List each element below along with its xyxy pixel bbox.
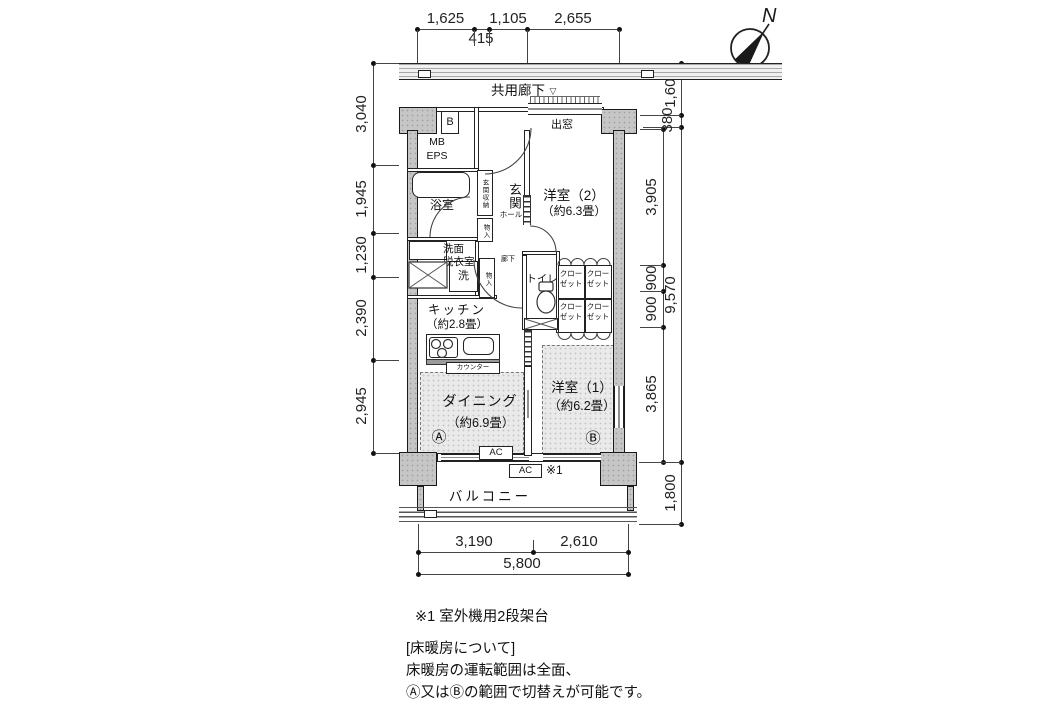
counter-label-box: カウンター xyxy=(446,362,500,374)
dim-label: 415 xyxy=(459,31,503,47)
closet-label: クロー ゼット xyxy=(559,269,583,289)
dim-label: 3,040 xyxy=(354,84,370,144)
dim-tick xyxy=(375,165,399,166)
eps-label: EPS xyxy=(413,150,461,164)
hall-label: ホール xyxy=(494,209,528,220)
wall-toilet-top xyxy=(522,251,560,255)
dim-ext xyxy=(489,30,490,46)
dim-dot xyxy=(416,572,421,577)
balcony-label: バルコニー xyxy=(443,485,537,505)
balcony-drain xyxy=(424,510,437,518)
dim-tick xyxy=(375,63,399,64)
closet-label-line: クロー xyxy=(559,302,583,312)
dim-label: 2,945 xyxy=(354,376,370,436)
dim-tick xyxy=(639,524,681,525)
floor-plan-page: N 1,625 1,105 2,655 415 3,040 1,945 1,23… xyxy=(0,0,1056,706)
western1-name: 洋室（1） xyxy=(545,376,619,396)
entry-marker-icon: ▽ xyxy=(546,86,560,97)
dim-ext xyxy=(619,30,620,63)
closet-label-line: ゼット xyxy=(586,279,610,289)
zone-b-marker: Ⓑ xyxy=(583,427,603,448)
stove xyxy=(429,337,458,358)
zone-a-marker: Ⓐ xyxy=(429,426,449,447)
closet-label-line: クロー xyxy=(586,302,610,312)
dim-tick xyxy=(375,360,399,361)
closet-label: クロー ゼット xyxy=(586,302,610,322)
dim-tick xyxy=(375,277,399,278)
note-floorheating-heading: [床暖房について] xyxy=(406,637,515,658)
entrance-storage-label: 玄関収納 xyxy=(479,173,489,215)
dim-label: 1,105 xyxy=(489,11,527,27)
dim-label: 9,570 xyxy=(663,265,679,325)
bay-window xyxy=(528,103,602,115)
corridor-drain-mark xyxy=(418,70,431,78)
meter-box: B xyxy=(441,111,459,134)
closet-label-line: ゼット xyxy=(559,312,583,322)
dim-label: 1,230 xyxy=(354,225,370,285)
dim-ext xyxy=(628,524,629,574)
dim-label: 3,865 xyxy=(644,364,660,424)
western1-size: （約6.2畳） xyxy=(545,395,619,414)
washroom-label-line: 洗面 xyxy=(443,243,493,256)
pillar-top-left xyxy=(399,107,437,134)
corridor-drain-mark xyxy=(641,70,654,78)
closet-label-line: ゼット xyxy=(586,312,610,322)
closet-bifold-arcs-bottom xyxy=(558,333,610,340)
dim-label: 2,655 xyxy=(527,11,619,27)
dim-dot xyxy=(626,572,631,577)
dim-label: 3,190 xyxy=(434,534,514,550)
dim-label: 2,390 xyxy=(354,288,370,348)
common-corridor-band xyxy=(399,63,782,80)
closet-divider xyxy=(558,298,612,300)
dim-ext xyxy=(417,30,418,63)
closet-label: クロー ゼット xyxy=(559,302,583,322)
wall-mb-right xyxy=(474,107,479,170)
hallway-label: 廊下 xyxy=(496,254,520,264)
toilet-label: トイレ xyxy=(525,271,559,286)
compass-needle-icon xyxy=(735,33,763,66)
ac-box-balcony: AC xyxy=(509,464,542,478)
dim-label: 380 xyxy=(660,100,676,140)
note-floorheating-line1: 床暖房の運転範囲は全面、 xyxy=(406,659,580,680)
kitchen-size: （約2.8畳） xyxy=(422,316,492,332)
dim-label: 2,610 xyxy=(539,534,619,550)
western2-door-gap xyxy=(524,224,530,252)
dining-name: ダイニング xyxy=(437,391,523,411)
dim-label: 1,625 xyxy=(417,11,474,27)
dim-label: 1,800 xyxy=(663,463,679,523)
washroom-label: 洗面 脱衣室 xyxy=(443,243,493,269)
dim-line xyxy=(373,63,374,453)
dim-dot xyxy=(416,550,421,555)
western2-size: （約6.3畳） xyxy=(531,202,617,219)
bath-label: 浴室 xyxy=(420,196,464,213)
western2-name: 洋室（2） xyxy=(531,184,617,204)
pillar-bottom-right xyxy=(600,452,637,486)
vent-box xyxy=(524,318,558,330)
dining-western1-opening xyxy=(524,390,532,418)
dim-ext xyxy=(527,30,528,63)
compass-north-label: N xyxy=(762,5,777,27)
dim-label: 5,800 xyxy=(482,556,562,572)
dim-line xyxy=(418,574,628,575)
bay-window-hatch xyxy=(530,96,600,103)
dim-line xyxy=(418,552,628,553)
mb-eps-label: MB EPS xyxy=(413,136,461,163)
washroom-label-line: 脱衣室 xyxy=(443,256,493,269)
dim-ext xyxy=(474,30,475,46)
ac-box-indoor: AC xyxy=(479,446,513,460)
dim-tick xyxy=(375,233,399,234)
wall-hatch xyxy=(524,330,532,366)
sink xyxy=(463,337,494,355)
balcony-sliding-window xyxy=(543,454,601,461)
storage-label: 物入 xyxy=(480,220,490,242)
closet-label-line: クロー xyxy=(559,269,583,279)
dim-line xyxy=(681,63,682,524)
closet-label-line: ゼット xyxy=(559,279,583,289)
dim-label: 1,945 xyxy=(354,169,370,229)
dim-label: 3,905 xyxy=(644,167,660,227)
note-floorheating-line2: Ⓐ又はⒷの範囲で切替えが可能です。 xyxy=(406,681,651,702)
bay-window-label: 出窓 xyxy=(538,116,586,132)
ac-note-ref: ※1 xyxy=(546,463,572,477)
washroom-cabinet xyxy=(409,241,447,260)
dim-line xyxy=(417,29,619,30)
western2-door-arc xyxy=(530,226,556,252)
dim-dot xyxy=(626,550,631,555)
bathtub xyxy=(412,172,470,198)
dim-label: 900 xyxy=(644,289,660,329)
toilet-bowl-icon xyxy=(537,291,555,313)
closet-label: クロー ゼット xyxy=(586,269,610,289)
note-ac-stand: ※1 室外機用2段架台 xyxy=(415,605,549,626)
closet-label-line: クロー xyxy=(586,269,610,279)
dim-ext xyxy=(418,524,419,574)
dim-tick xyxy=(375,453,399,454)
dining-size: （約6.9畳） xyxy=(447,412,513,431)
mb-label: MB xyxy=(413,136,461,150)
pillar-bottom-left xyxy=(399,452,437,486)
